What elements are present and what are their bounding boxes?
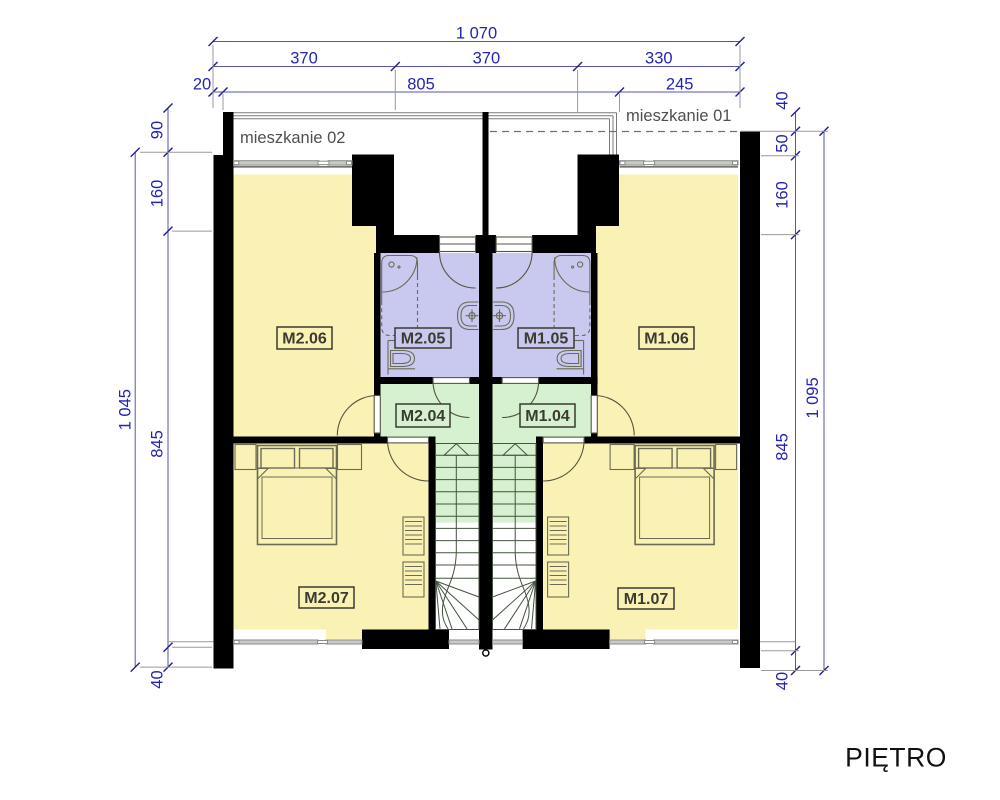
svg-text:M1.05: M1.05 [524,331,569,348]
svg-text:1 070: 1 070 [456,25,497,43]
svg-text:50: 50 [774,134,792,152]
svg-text:160: 160 [774,181,792,209]
svg-text:M1.06: M1.06 [644,331,689,348]
svg-text:370: 370 [290,50,318,68]
svg-text:1 095: 1 095 [804,377,822,418]
svg-text:M2.06: M2.06 [282,331,327,348]
svg-text:M1.07: M1.07 [624,591,669,608]
svg-text:M2.04: M2.04 [401,408,446,425]
svg-text:370: 370 [473,50,501,68]
svg-text:245: 245 [666,76,694,94]
svg-text:mieszkanie 01: mieszkanie 01 [626,107,731,125]
svg-text:40: 40 [774,91,792,109]
svg-text:90: 90 [149,121,167,139]
svg-text:40: 40 [149,670,167,688]
svg-text:805: 805 [407,76,435,94]
svg-text:M1.04: M1.04 [525,408,570,425]
svg-text:20: 20 [193,76,211,94]
svg-text:PIĘTRO: PIĘTRO [845,743,947,773]
svg-text:845: 845 [774,433,792,461]
svg-text:330: 330 [645,50,673,68]
svg-text:1 045: 1 045 [117,389,135,430]
svg-text:M2.05: M2.05 [401,331,446,348]
svg-text:845: 845 [149,430,167,458]
svg-text:40: 40 [774,672,792,690]
svg-text:M2.07: M2.07 [304,590,349,607]
svg-text:mieszkanie 02: mieszkanie 02 [240,129,345,147]
svg-text:160: 160 [149,180,167,208]
